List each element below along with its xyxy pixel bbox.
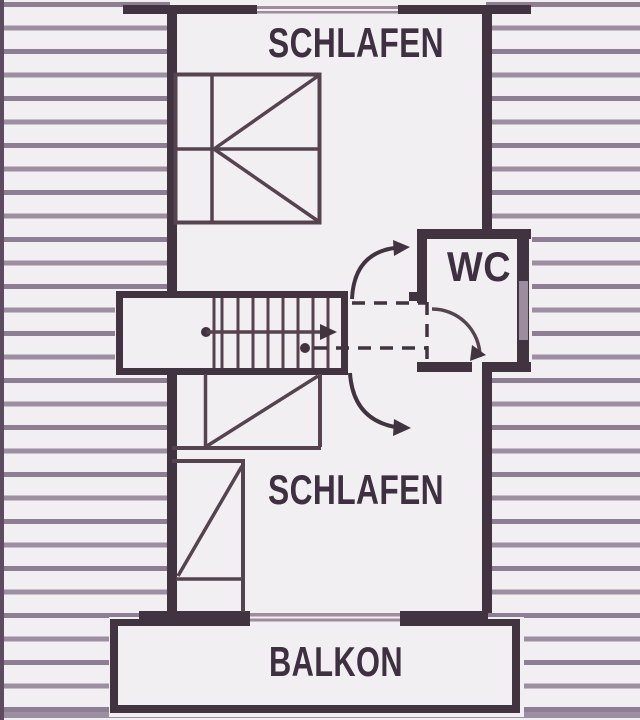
wc-wall-stub <box>409 292 427 301</box>
floor-plan: SCHLAFEN <box>0 0 640 720</box>
bottom-window-inner <box>250 619 400 622</box>
balcony-wall-left <box>110 619 118 713</box>
guide-dot <box>300 343 310 353</box>
stair-bay-wall <box>116 291 123 375</box>
balcony-wall-bottom <box>110 705 520 713</box>
wc-wall-bottom-left <box>417 362 472 372</box>
stair-bay-floor <box>115 289 172 377</box>
balcony-wall-top-left <box>110 619 250 626</box>
balcony-label: BALKON <box>269 638 403 685</box>
wc-label: WC <box>447 243 511 290</box>
left-wall-lower <box>167 374 177 612</box>
top-wall-right <box>398 5 531 14</box>
wc-window <box>519 281 528 340</box>
wc-wall-top <box>417 229 531 239</box>
top-window-inner <box>257 11 398 14</box>
photo-left-edge <box>0 0 4 720</box>
lower-bedroom-label: SCHLAFEN <box>268 466 444 513</box>
top-wall-left <box>123 5 257 14</box>
bottom-window <box>250 613 400 617</box>
balcony-wall-right <box>512 619 520 713</box>
right-wall-upper <box>482 5 492 231</box>
stair-end-wall <box>341 296 348 370</box>
wc-wall-left <box>417 229 427 303</box>
right-wall-lower <box>482 371 492 613</box>
balcony-wall-top-right <box>400 619 520 626</box>
stair-wall-bottom <box>116 368 348 375</box>
stair-wall-top <box>116 291 348 298</box>
upper-bedroom-label: SCHLAFEN <box>268 19 444 66</box>
top-window <box>257 6 398 9</box>
